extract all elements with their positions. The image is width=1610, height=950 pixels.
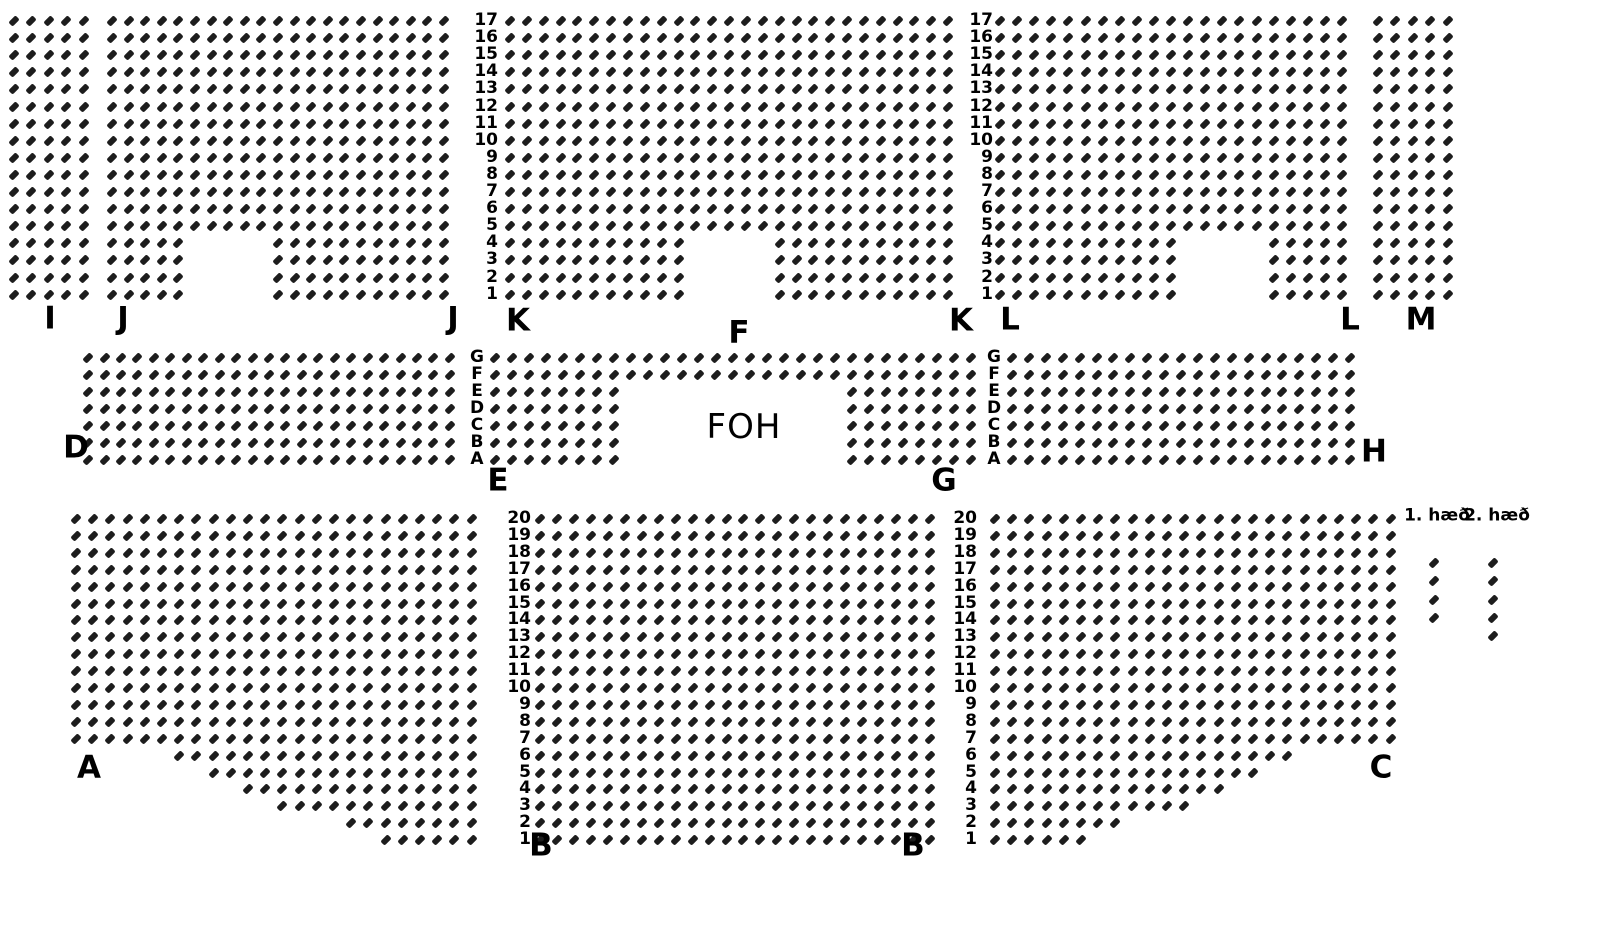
seat-A[interactable] bbox=[380, 530, 391, 541]
seat-D[interactable] bbox=[395, 369, 406, 380]
seat-A[interactable] bbox=[380, 784, 391, 795]
seat-B[interactable] bbox=[873, 716, 884, 727]
seat-B[interactable] bbox=[890, 699, 901, 710]
seat-J[interactable] bbox=[339, 169, 350, 180]
seat-C[interactable] bbox=[1075, 784, 1086, 795]
seat-B[interactable] bbox=[551, 699, 562, 710]
seat-B[interactable] bbox=[856, 750, 867, 761]
seat-C[interactable] bbox=[1024, 530, 1035, 541]
seat-K-F[interactable] bbox=[605, 135, 616, 146]
seat-K-F[interactable] bbox=[622, 289, 633, 300]
seat-D[interactable] bbox=[181, 386, 192, 397]
seat-A[interactable] bbox=[174, 716, 185, 727]
seat-B[interactable] bbox=[755, 513, 766, 524]
seat-C[interactable] bbox=[1282, 699, 1293, 710]
seat-E-G-center[interactable] bbox=[727, 352, 738, 363]
seat-H[interactable] bbox=[1226, 403, 1237, 414]
seat-M[interactable] bbox=[1442, 255, 1453, 266]
seat-L[interactable] bbox=[994, 118, 1005, 129]
seat-K-F[interactable] bbox=[673, 135, 684, 146]
seat-E-G-center[interactable] bbox=[744, 352, 755, 363]
seat-J[interactable] bbox=[156, 101, 167, 112]
seat-H[interactable] bbox=[1091, 437, 1102, 448]
seat-J[interactable] bbox=[206, 50, 217, 61]
seat-C[interactable] bbox=[1041, 834, 1052, 845]
seat-K-F[interactable] bbox=[673, 152, 684, 163]
seat-B[interactable] bbox=[772, 598, 783, 609]
seat-E-G-center[interactable] bbox=[846, 369, 857, 380]
seat-C[interactable] bbox=[1058, 699, 1069, 710]
seat-J[interactable] bbox=[405, 84, 416, 95]
seat-A[interactable] bbox=[277, 733, 288, 744]
seat-J[interactable] bbox=[223, 32, 234, 43]
seat-B[interactable] bbox=[839, 818, 850, 829]
seat-B[interactable] bbox=[738, 564, 749, 575]
seat-D[interactable] bbox=[247, 386, 258, 397]
seat-L[interactable] bbox=[1268, 135, 1279, 146]
seat-L[interactable] bbox=[1234, 118, 1245, 129]
seat-L[interactable] bbox=[1097, 152, 1108, 163]
seat-H[interactable] bbox=[1311, 352, 1322, 363]
seat-K-F[interactable] bbox=[605, 169, 616, 180]
seat-J[interactable] bbox=[123, 203, 134, 214]
seat-J[interactable] bbox=[256, 32, 267, 43]
seat-E-G-center[interactable] bbox=[659, 369, 670, 380]
seat-J[interactable] bbox=[438, 101, 449, 112]
seat-B[interactable] bbox=[806, 649, 817, 660]
seat-K-F[interactable] bbox=[841, 67, 852, 78]
seat-B[interactable] bbox=[585, 750, 596, 761]
seat-L[interactable] bbox=[1336, 289, 1347, 300]
seat-C[interactable] bbox=[1161, 682, 1172, 693]
seat-C[interactable] bbox=[1230, 598, 1241, 609]
seat-J[interactable] bbox=[322, 101, 333, 112]
seat-C[interactable] bbox=[1333, 530, 1344, 541]
seat-L[interactable] bbox=[1029, 152, 1040, 163]
seat-A[interactable] bbox=[432, 649, 443, 660]
seat-K-F[interactable] bbox=[504, 289, 515, 300]
seat-L[interactable] bbox=[1148, 101, 1159, 112]
seat-C[interactable] bbox=[1368, 649, 1379, 660]
seat-B[interactable] bbox=[772, 665, 783, 676]
seat-L[interactable] bbox=[1114, 255, 1125, 266]
seat-K-F[interactable] bbox=[791, 32, 802, 43]
seat-A[interactable] bbox=[363, 564, 374, 575]
seat-H[interactable] bbox=[1023, 437, 1034, 448]
seat-I[interactable] bbox=[26, 169, 37, 180]
seat-L[interactable] bbox=[1046, 152, 1057, 163]
seat-J[interactable] bbox=[140, 272, 151, 283]
seat-I[interactable] bbox=[78, 50, 89, 61]
seat-J[interactable] bbox=[239, 186, 250, 197]
seat-M[interactable] bbox=[1390, 118, 1401, 129]
seat-B[interactable] bbox=[822, 682, 833, 693]
seat-K-F[interactable] bbox=[774, 255, 785, 266]
seat-A[interactable] bbox=[225, 564, 236, 575]
seat-B[interactable] bbox=[585, 632, 596, 643]
seat-B[interactable] bbox=[890, 834, 901, 845]
seat-B[interactable] bbox=[687, 547, 698, 558]
seat-B[interactable] bbox=[619, 649, 630, 660]
seat-K-F[interactable] bbox=[707, 50, 718, 61]
seat-D[interactable] bbox=[247, 352, 258, 363]
seat-A[interactable] bbox=[70, 547, 81, 558]
seat-K-F[interactable] bbox=[926, 169, 937, 180]
seat-K-F[interactable] bbox=[841, 272, 852, 283]
seat-J[interactable] bbox=[256, 84, 267, 95]
seat-D[interactable] bbox=[214, 454, 225, 465]
seat-L[interactable] bbox=[1131, 32, 1142, 43]
seat-L[interactable] bbox=[1097, 135, 1108, 146]
seat-E-G-center[interactable] bbox=[591, 454, 602, 465]
seat-B[interactable] bbox=[687, 834, 698, 845]
seat-K-F[interactable] bbox=[707, 67, 718, 78]
seat-J[interactable] bbox=[239, 221, 250, 232]
seat-B[interactable] bbox=[534, 699, 545, 710]
seat-L[interactable] bbox=[1011, 67, 1022, 78]
seat-J[interactable] bbox=[173, 238, 184, 249]
seat-M[interactable] bbox=[1390, 32, 1401, 43]
seat-A[interactable] bbox=[346, 530, 357, 541]
seat-K-F[interactable] bbox=[723, 221, 734, 232]
seat-A[interactable] bbox=[139, 547, 150, 558]
seat-H[interactable] bbox=[1125, 352, 1136, 363]
seat-K-F[interactable] bbox=[521, 67, 532, 78]
seat-A[interactable] bbox=[208, 581, 219, 592]
seat-B[interactable] bbox=[839, 699, 850, 710]
seat-A[interactable] bbox=[139, 615, 150, 626]
seat-K-F[interactable] bbox=[690, 84, 701, 95]
seat-C[interactable] bbox=[1247, 547, 1258, 558]
seat-H[interactable] bbox=[1277, 386, 1288, 397]
seat-K-F[interactable] bbox=[892, 50, 903, 61]
seat-K-F[interactable] bbox=[808, 272, 819, 283]
seat-B[interactable] bbox=[772, 513, 783, 524]
seat-A[interactable] bbox=[174, 547, 185, 558]
seat-D[interactable] bbox=[395, 403, 406, 414]
seat-H[interactable] bbox=[1277, 454, 1288, 465]
seat-B[interactable] bbox=[602, 615, 613, 626]
seat-K-F[interactable] bbox=[555, 32, 566, 43]
seat-K-F[interactable] bbox=[808, 67, 819, 78]
seat-B[interactable] bbox=[924, 716, 935, 727]
seat-K-F[interactable] bbox=[605, 203, 616, 214]
seat-L[interactable] bbox=[1217, 221, 1228, 232]
seat-E-G-center[interactable] bbox=[642, 352, 653, 363]
seat-C[interactable] bbox=[1351, 513, 1362, 524]
seat-I[interactable] bbox=[8, 101, 19, 112]
seat-C[interactable] bbox=[1385, 598, 1396, 609]
seat-B[interactable] bbox=[619, 699, 630, 710]
seat-A[interactable] bbox=[363, 615, 374, 626]
seat-K-F[interactable] bbox=[926, 118, 937, 129]
seat-A[interactable] bbox=[225, 767, 236, 778]
seat-J[interactable] bbox=[339, 67, 350, 78]
seat-B[interactable] bbox=[721, 615, 732, 626]
seat-L[interactable] bbox=[1097, 272, 1108, 283]
seat-D[interactable] bbox=[115, 454, 126, 465]
seat-J[interactable] bbox=[106, 15, 117, 26]
seat-B[interactable] bbox=[924, 834, 935, 845]
seat-C[interactable] bbox=[1144, 716, 1155, 727]
seat-K-F[interactable] bbox=[521, 186, 532, 197]
seat-C[interactable] bbox=[1179, 649, 1190, 660]
seat-I[interactable] bbox=[43, 169, 54, 180]
seat-I[interactable] bbox=[43, 84, 54, 95]
seat-A[interactable] bbox=[208, 733, 219, 744]
seat-B[interactable] bbox=[856, 581, 867, 592]
seat-K-F[interactable] bbox=[825, 255, 836, 266]
seat-C[interactable] bbox=[1333, 649, 1344, 660]
seat-J[interactable] bbox=[405, 118, 416, 129]
seat-C[interactable] bbox=[1041, 530, 1052, 541]
seat-K-F[interactable] bbox=[892, 203, 903, 214]
seat-A[interactable] bbox=[414, 767, 425, 778]
seat-D[interactable] bbox=[230, 454, 241, 465]
seat-A[interactable] bbox=[294, 547, 305, 558]
seat-B[interactable] bbox=[568, 733, 579, 744]
seat-K-F[interactable] bbox=[572, 272, 583, 283]
seat-L[interactable] bbox=[1114, 169, 1125, 180]
seat-K-F[interactable] bbox=[589, 255, 600, 266]
seat-A[interactable] bbox=[311, 581, 322, 592]
seat-A[interactable] bbox=[397, 699, 408, 710]
seat-L[interactable] bbox=[1251, 67, 1262, 78]
seat-B[interactable] bbox=[839, 801, 850, 812]
seat-L[interactable] bbox=[1063, 101, 1074, 112]
seat-K-F[interactable] bbox=[656, 84, 667, 95]
seat-A[interactable] bbox=[294, 716, 305, 727]
seat-L[interactable] bbox=[1268, 238, 1279, 249]
seat-A[interactable] bbox=[122, 665, 133, 676]
seat-H[interactable] bbox=[1311, 369, 1322, 380]
seat-C[interactable] bbox=[1213, 716, 1224, 727]
seat-A[interactable] bbox=[70, 665, 81, 676]
seat-K-F[interactable] bbox=[589, 169, 600, 180]
seat-A[interactable] bbox=[156, 581, 167, 592]
seat-E-G-center[interactable] bbox=[914, 352, 925, 363]
seat-B[interactable] bbox=[687, 615, 698, 626]
seat-B[interactable] bbox=[738, 530, 749, 541]
seat-H[interactable] bbox=[1327, 420, 1338, 431]
seat-A[interactable] bbox=[208, 598, 219, 609]
seat-J[interactable] bbox=[438, 67, 449, 78]
seat-B[interactable] bbox=[602, 818, 613, 829]
seat-H[interactable] bbox=[1294, 386, 1305, 397]
seat-A[interactable] bbox=[88, 530, 99, 541]
seat-B[interactable] bbox=[738, 733, 749, 744]
seat-D[interactable] bbox=[395, 454, 406, 465]
seat-A[interactable] bbox=[328, 598, 339, 609]
seat-B[interactable] bbox=[856, 530, 867, 541]
seat-K-F[interactable] bbox=[892, 272, 903, 283]
seat-M[interactable] bbox=[1407, 186, 1418, 197]
seat-K-F[interactable] bbox=[504, 221, 515, 232]
seat-E-G-center[interactable] bbox=[591, 352, 602, 363]
seat-M[interactable] bbox=[1442, 135, 1453, 146]
seat-A[interactable] bbox=[122, 716, 133, 727]
seat-B[interactable] bbox=[738, 750, 749, 761]
seat-B[interactable] bbox=[822, 513, 833, 524]
seat-K-F[interactable] bbox=[605, 84, 616, 95]
seat-C[interactable] bbox=[1196, 649, 1207, 660]
seat-B[interactable] bbox=[602, 750, 613, 761]
seat-H[interactable] bbox=[1142, 369, 1153, 380]
seat-D[interactable] bbox=[280, 437, 291, 448]
seat-A[interactable] bbox=[397, 767, 408, 778]
seat-B[interactable] bbox=[890, 716, 901, 727]
seat-J[interactable] bbox=[189, 169, 200, 180]
seat-C[interactable] bbox=[1368, 615, 1379, 626]
seat-B[interactable] bbox=[839, 834, 850, 845]
seat-J[interactable] bbox=[306, 238, 317, 249]
seat-B[interactable] bbox=[670, 750, 681, 761]
seat-I[interactable] bbox=[43, 152, 54, 163]
seat-L[interactable] bbox=[1046, 118, 1057, 129]
seat-A[interactable] bbox=[311, 767, 322, 778]
seat-B[interactable] bbox=[890, 564, 901, 575]
seat-B[interactable] bbox=[873, 530, 884, 541]
seat-M[interactable] bbox=[1372, 255, 1383, 266]
seat-M[interactable] bbox=[1442, 84, 1453, 95]
seat-B[interactable] bbox=[653, 699, 664, 710]
seat-D[interactable] bbox=[378, 403, 389, 414]
seat-D[interactable] bbox=[313, 437, 324, 448]
seat-J[interactable] bbox=[405, 152, 416, 163]
seat-E-G-center[interactable] bbox=[846, 454, 857, 465]
seat-J[interactable] bbox=[405, 67, 416, 78]
seat-K-F[interactable] bbox=[572, 152, 583, 163]
seat-A[interactable] bbox=[311, 733, 322, 744]
seat-A[interactable] bbox=[466, 767, 477, 778]
seat-B[interactable] bbox=[619, 598, 630, 609]
seat-C[interactable] bbox=[1333, 632, 1344, 643]
seat-I[interactable] bbox=[78, 203, 89, 214]
seat-I[interactable] bbox=[26, 67, 37, 78]
seat-L[interactable] bbox=[994, 221, 1005, 232]
seat-D[interactable] bbox=[181, 352, 192, 363]
seat-A[interactable] bbox=[449, 547, 460, 558]
seat-K-F[interactable] bbox=[942, 152, 953, 163]
seat-B[interactable] bbox=[602, 547, 613, 558]
seat-A[interactable] bbox=[311, 682, 322, 693]
seat-E-G-center[interactable] bbox=[608, 369, 619, 380]
seat-L[interactable] bbox=[1148, 272, 1159, 283]
seat-J[interactable] bbox=[438, 272, 449, 283]
seat-B[interactable] bbox=[839, 750, 850, 761]
seat-B[interactable] bbox=[856, 818, 867, 829]
seat-J[interactable] bbox=[272, 50, 283, 61]
seat-A[interactable] bbox=[311, 564, 322, 575]
seat-B[interactable] bbox=[806, 530, 817, 541]
seat-C[interactable] bbox=[1161, 665, 1172, 676]
seat-H[interactable] bbox=[1192, 352, 1203, 363]
seat-B[interactable] bbox=[602, 801, 613, 812]
seat-K-F[interactable] bbox=[639, 32, 650, 43]
seat-K-F[interactable] bbox=[858, 221, 869, 232]
seat-K-F[interactable] bbox=[909, 32, 920, 43]
seat-C[interactable] bbox=[1024, 649, 1035, 660]
seat-C[interactable] bbox=[1213, 767, 1224, 778]
seat-L[interactable] bbox=[1165, 221, 1176, 232]
seat-C[interactable] bbox=[1058, 784, 1069, 795]
seat-L[interactable] bbox=[1165, 32, 1176, 43]
seat-J[interactable] bbox=[355, 118, 366, 129]
seat-K-F[interactable] bbox=[858, 272, 869, 283]
seat-B[interactable] bbox=[636, 834, 647, 845]
seat-A[interactable] bbox=[225, 699, 236, 710]
seat-J[interactable] bbox=[389, 15, 400, 26]
seat-J[interactable] bbox=[173, 101, 184, 112]
seat-C[interactable] bbox=[1247, 733, 1258, 744]
seat-J[interactable] bbox=[106, 255, 117, 266]
seat-A[interactable] bbox=[242, 767, 253, 778]
seat-K-F[interactable] bbox=[875, 238, 886, 249]
seat-L[interactable] bbox=[1131, 50, 1142, 61]
seat-K-F[interactable] bbox=[707, 101, 718, 112]
seat-H[interactable] bbox=[1006, 386, 1017, 397]
seat-H[interactable] bbox=[1158, 403, 1169, 414]
seat-K-F[interactable] bbox=[774, 289, 785, 300]
seat-B[interactable] bbox=[602, 649, 613, 660]
seat-C[interactable] bbox=[1041, 733, 1052, 744]
seat-B[interactable] bbox=[755, 547, 766, 558]
seat-A[interactable] bbox=[294, 801, 305, 812]
seat-D[interactable] bbox=[165, 386, 176, 397]
seat-D[interactable] bbox=[362, 454, 373, 465]
seat-M[interactable] bbox=[1390, 289, 1401, 300]
seat-E-G-center[interactable] bbox=[914, 420, 925, 431]
seat-B[interactable] bbox=[738, 665, 749, 676]
seat-M[interactable] bbox=[1425, 67, 1436, 78]
seat-A[interactable] bbox=[191, 682, 202, 693]
seat-B[interactable] bbox=[907, 750, 918, 761]
seat-J[interactable] bbox=[438, 135, 449, 146]
seat-A[interactable] bbox=[311, 547, 322, 558]
seat-L[interactable] bbox=[1234, 135, 1245, 146]
seat-B[interactable] bbox=[924, 615, 935, 626]
seat-K-F[interactable] bbox=[690, 118, 701, 129]
seat-M[interactable] bbox=[1407, 15, 1418, 26]
seat-C[interactable] bbox=[989, 767, 1000, 778]
seat-D[interactable] bbox=[346, 403, 357, 414]
seat-A[interactable] bbox=[380, 581, 391, 592]
seat-B[interactable] bbox=[856, 598, 867, 609]
seat-D[interactable] bbox=[428, 352, 439, 363]
seat-K-F[interactable] bbox=[538, 67, 549, 78]
seat-B[interactable] bbox=[534, 733, 545, 744]
seat-K-F[interactable] bbox=[639, 255, 650, 266]
seat-L[interactable] bbox=[1063, 289, 1074, 300]
seat-D[interactable] bbox=[247, 420, 258, 431]
seat-A[interactable] bbox=[449, 513, 460, 524]
seat-C[interactable] bbox=[1247, 513, 1258, 524]
seat-B[interactable] bbox=[873, 784, 884, 795]
seat-B[interactable] bbox=[687, 665, 698, 676]
seat-B[interactable] bbox=[585, 801, 596, 812]
seat-C[interactable] bbox=[1316, 649, 1327, 660]
seat-B[interactable] bbox=[534, 682, 545, 693]
seat-J[interactable] bbox=[422, 221, 433, 232]
seat-B[interactable] bbox=[619, 818, 630, 829]
seat-L[interactable] bbox=[1182, 118, 1193, 129]
seat-H[interactable] bbox=[1311, 403, 1322, 414]
seat-J[interactable] bbox=[239, 118, 250, 129]
seat-K-F[interactable] bbox=[774, 118, 785, 129]
seat-B[interactable] bbox=[721, 682, 732, 693]
seat-C[interactable] bbox=[1075, 513, 1086, 524]
seat-B[interactable] bbox=[873, 649, 884, 660]
